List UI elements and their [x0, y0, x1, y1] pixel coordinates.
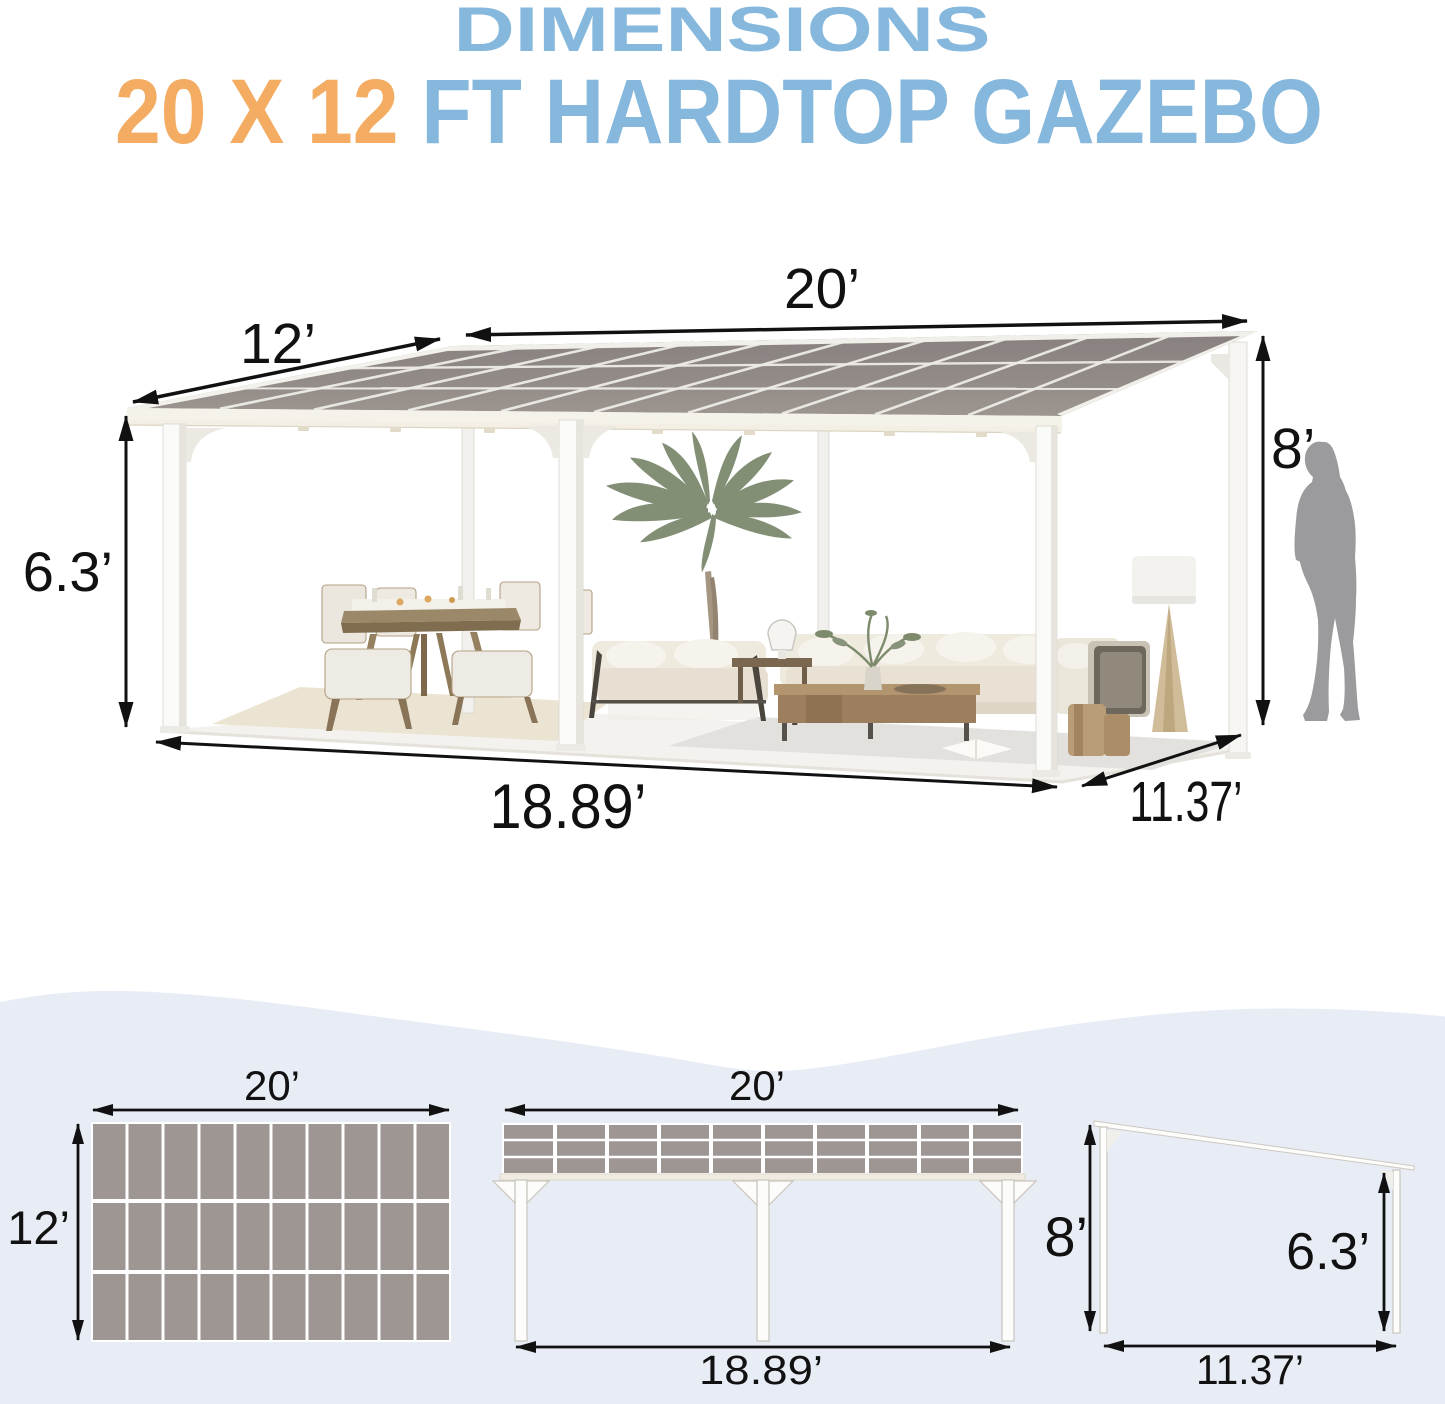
svg-text:11.37’: 11.37’ — [1130, 770, 1243, 834]
svg-text:18.89’: 18.89’ — [490, 772, 647, 842]
svg-text:20’: 20’ — [244, 1062, 300, 1109]
svg-text:20 X 12 FT HARDTOP GAZEBO: 20 X 12 FT HARDTOP GAZEBO — [115, 61, 1323, 163]
svg-text:6.3’: 6.3’ — [1286, 1223, 1370, 1281]
svg-text:12’: 12’ — [240, 312, 316, 376]
svg-text:20’: 20’ — [784, 257, 860, 321]
svg-text:12’: 12’ — [7, 1201, 70, 1254]
svg-text:8’: 8’ — [1271, 417, 1315, 481]
svg-text:20’: 20’ — [729, 1062, 785, 1109]
svg-text:6.3’: 6.3’ — [23, 540, 113, 603]
svg-text:8’: 8’ — [1044, 1205, 1088, 1268]
svg-text:11.37’: 11.37’ — [1196, 1346, 1304, 1393]
svg-text:DIMENSIONS: DIMENSIONS — [454, 0, 991, 65]
svg-text:18.89’: 18.89’ — [699, 1347, 823, 1393]
